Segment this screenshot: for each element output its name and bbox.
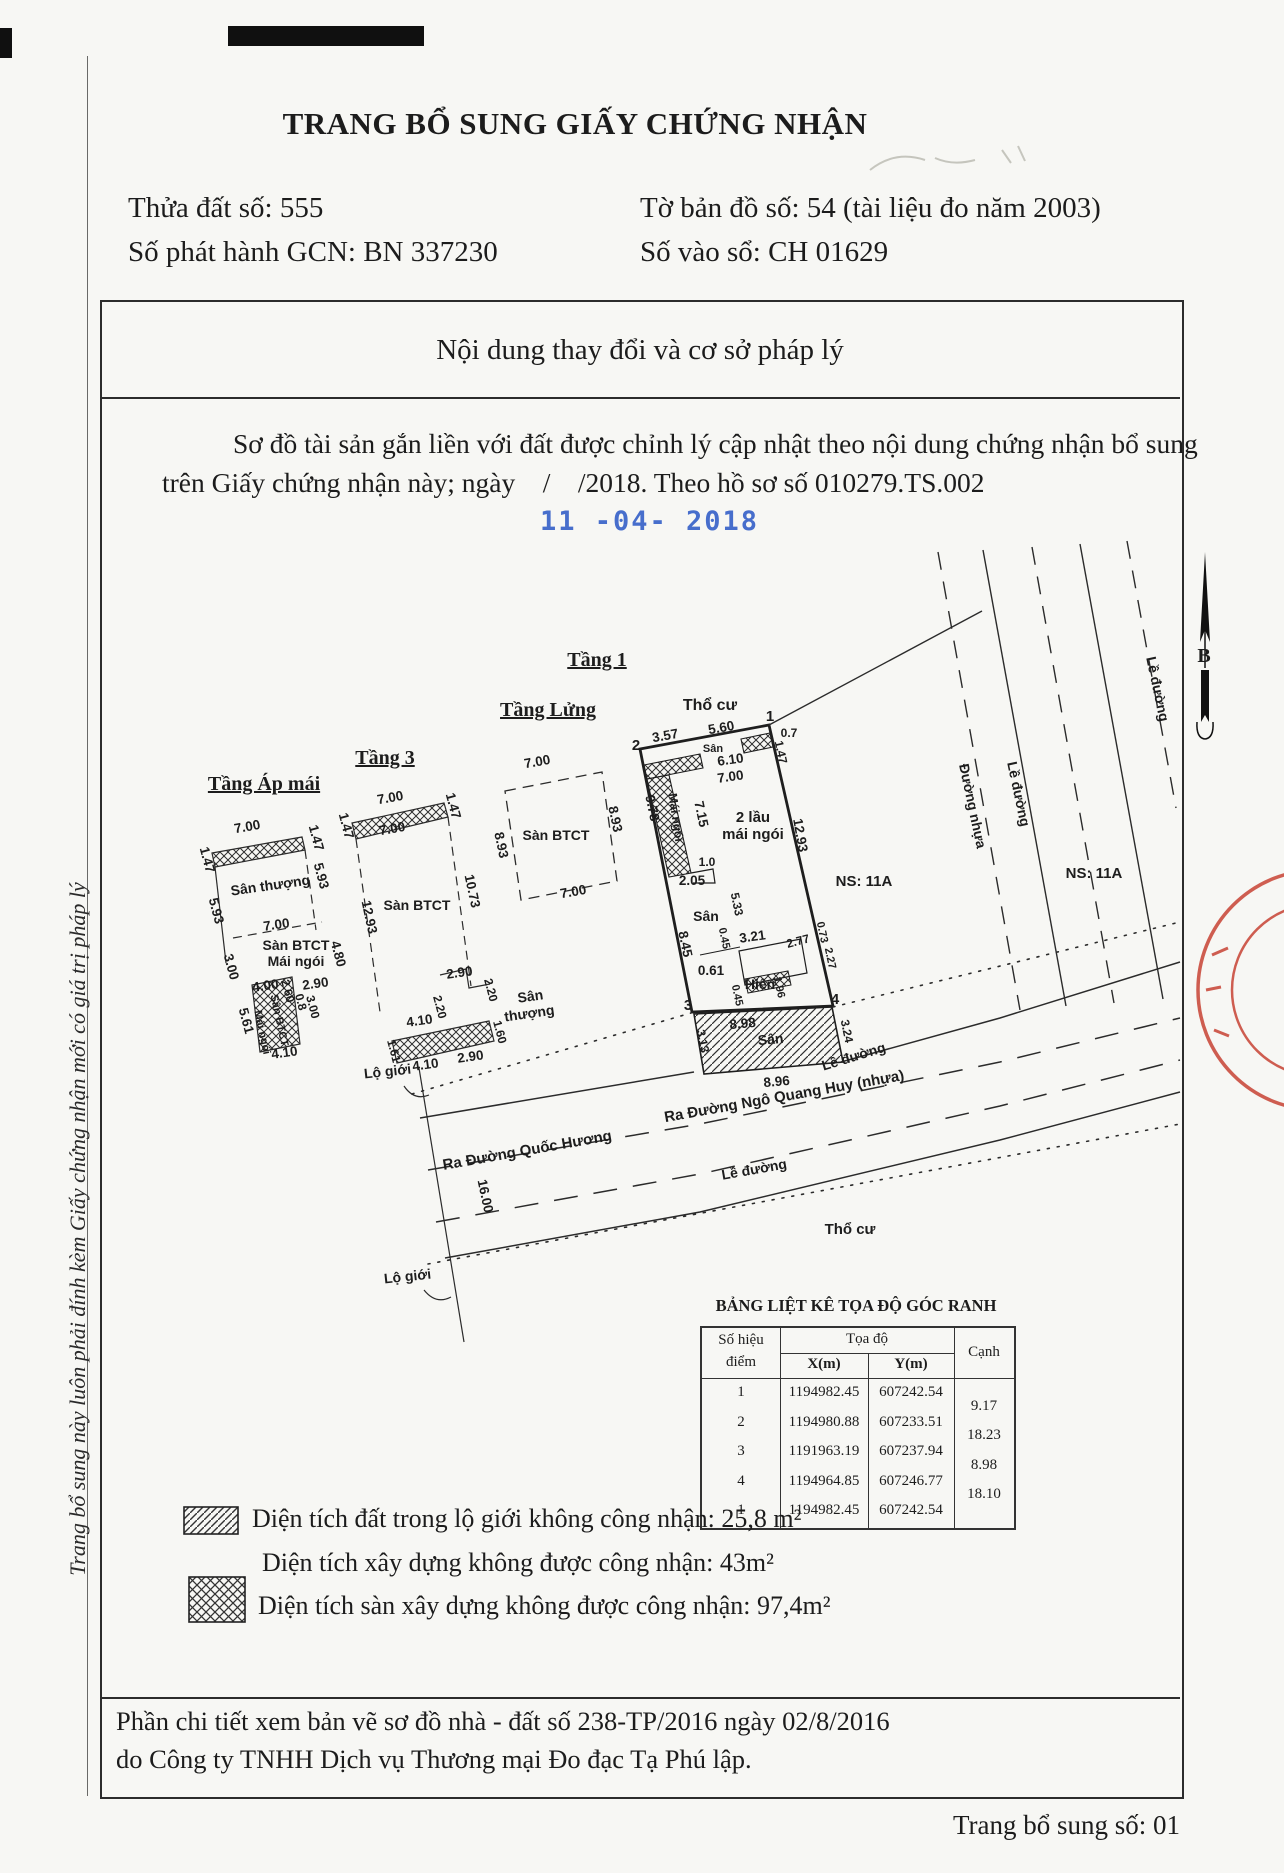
drawing-label: B (1197, 645, 1210, 667)
red-stamp-partial (1198, 870, 1284, 1110)
col-header-y: Y(m) (868, 1356, 954, 1373)
legend-item-1: Diện tích đất trong lộ giới không công n… (252, 1504, 801, 1534)
drawing-label: 3 (684, 997, 692, 1014)
legend-item-2: Diện tích xây dựng không được công nhận:… (262, 1548, 774, 1578)
drawing-label: 1 (766, 708, 774, 725)
drawing-label: 5.93 (206, 896, 227, 926)
pencil-marks (870, 146, 1025, 170)
drawing-label: Lề đường (1143, 655, 1172, 723)
drawing-label: 0.45 (716, 927, 732, 950)
drawing-label: Mái ngói (268, 953, 325, 969)
footer-note-line2: do Công ty TNHH Dịch vụ Thương mại Đo đạ… (116, 1744, 752, 1775)
drawing-label: Thổ cư (825, 1221, 876, 1238)
col-header-coord: Tọa độ (780, 1331, 954, 1348)
drawing-label: 2.05 (679, 873, 706, 888)
drawing-label: 0.45 (729, 984, 745, 1007)
drawing-label: 2.90 (445, 963, 473, 982)
drawing-label: NS: 11A (1066, 865, 1123, 882)
drawing-label: 1.0 (699, 855, 716, 869)
drawing-label: 0.73 (814, 921, 830, 944)
drawing-label: 2.90 (456, 1047, 484, 1066)
drawing-label: 2 lầu (736, 809, 770, 826)
drawing-label: 1.47 (336, 811, 357, 840)
col-header-point: Số hiệu (702, 1332, 780, 1349)
drawing-label: 2.77 (785, 931, 811, 951)
table-row: 21194980.88607233.51 (702, 1408, 954, 1438)
drawing-label: Đường nhựa (956, 762, 990, 850)
drawing-label: 4 (831, 991, 840, 1008)
drawing-label: Sàn BTCT (263, 937, 330, 953)
drawing-label: 8.98 (729, 1015, 757, 1032)
drawing-label: 3.00 (303, 994, 323, 1020)
scanned-document-page: TRANG BỔ SUNG GIẤY CHỨNG NHẬN Thửa đất s… (0, 0, 1284, 1873)
drawing-label: Sân thượng (230, 872, 311, 899)
table-row: 41194964.85607246.77 (702, 1467, 954, 1497)
drawing-label: 5.60 (707, 718, 735, 737)
drawing-label: Lề đường (720, 1155, 788, 1182)
drawing-label: Tầng Áp mái (208, 772, 321, 795)
table-edge-value: 18.23 (954, 1427, 1014, 1444)
drawing-label: 3.00 (221, 952, 242, 981)
table-hline (780, 1353, 954, 1354)
drawing-label: 2.20 (430, 994, 450, 1020)
drawing-label: 7.00 (559, 882, 587, 901)
table-row: 31191963.19607237.94 (702, 1437, 954, 1467)
drawing-label: 2.20 (481, 977, 501, 1003)
drawing-label: 1.47 (197, 845, 218, 874)
drawing-label: 7.00 (233, 817, 261, 836)
drawing-label: 2 (632, 737, 640, 754)
road-bottom (404, 922, 1180, 1342)
drawing-label: 7.00 (262, 915, 290, 934)
drawing-label: 4.80 (328, 939, 349, 968)
divider-line (100, 1697, 1180, 1699)
coord-table-title: BẢNG LIỆT KÊ TỌA ĐỘ GÓC RANH (700, 1296, 1012, 1316)
drawing-label: 7.00 (523, 752, 551, 771)
drawing-label: thượng (503, 1002, 555, 1025)
drawing-label: Thổ cư (683, 696, 738, 714)
drawing-label: 7.00 (378, 819, 406, 838)
drawing-label: 4.10 (270, 1043, 298, 1062)
legend-item-3: Diện tích sàn xây dựng không được công n… (258, 1591, 831, 1621)
drawing-label: 0.61 (698, 963, 725, 978)
drawing-label: 5.93 (311, 861, 332, 891)
drawing-label: 4.10 (405, 1011, 433, 1030)
drawing-label: 3.24 (838, 1018, 857, 1044)
drawing-label: 7.00 (716, 767, 744, 786)
table-edge-value: 8.98 (954, 1457, 1014, 1474)
drawing-label: 8.45 (675, 930, 695, 959)
drawing-label: 4.10 (411, 1055, 439, 1074)
drawing-label: Tầng 3 (355, 747, 414, 769)
drawing-label: 8.93 (491, 831, 511, 860)
drawing-label: Tầng 1 (567, 649, 626, 671)
side-vertical-note: Trang bổ sung này luôn phải đính kèm Giấ… (65, 839, 91, 1619)
drawing-label: Tầng Lửng (500, 699, 596, 721)
drawing-label: 2.90 (301, 974, 329, 993)
drawing-label: NS: 11A (836, 873, 893, 890)
drawing-label: 0.7 (781, 726, 798, 740)
col-header-point2: điểm (702, 1354, 780, 1371)
page-footer: Trang bổ sung số: 01 (780, 1810, 1180, 1841)
col-header-edge: Cạnh (954, 1344, 1014, 1361)
legend-swatch-diagonal (183, 1506, 239, 1536)
drawing-label: 3.21 (738, 927, 767, 946)
table-edge-value: 9.17 (954, 1398, 1014, 1415)
table-row: 11194982.45607242.54 (702, 1378, 954, 1408)
drawing-label: Sàn BTCT (523, 827, 590, 843)
drawing-label: mái ngói (722, 826, 784, 843)
col-header-x: X(m) (780, 1356, 868, 1373)
drawing-label: Lộ giới (363, 1061, 412, 1082)
drawing-label: 5.33 (728, 891, 747, 917)
drawing-label: 7.15 (691, 800, 711, 829)
legend-swatch-cross (188, 1576, 246, 1624)
drawing-label: Ra Đường Quốc Hương (441, 1127, 613, 1174)
drawing-label: Lề đường (1004, 760, 1033, 828)
table-edge-value: 18.10 (954, 1486, 1014, 1503)
drawing-label: 16.00 (475, 1178, 497, 1214)
drawing-label: Sàn BTCT (384, 897, 451, 913)
drawing-label: 12.93 (359, 899, 381, 936)
drawing-label: 10.73 (462, 873, 484, 910)
drawing-label: 1.47 (772, 739, 791, 765)
drawing-label: 1.47 (306, 823, 327, 852)
drawing-label: Sân (757, 1030, 784, 1048)
footer-note-line1: Phần chi tiết xem bản vẽ sơ đồ nhà - đất… (116, 1706, 890, 1737)
drawing-label: Lộ giới (383, 1266, 432, 1287)
drawing-label: 7.00 (376, 788, 404, 807)
coord-table: Số hiệu điểm Tọa độ X(m) Y(m) Cạnh 11194… (700, 1326, 1016, 1530)
drawing-label: 12.93 (790, 817, 811, 853)
drawing-label: 8.93 (605, 805, 625, 834)
drawing-label: 6.10 (716, 750, 744, 769)
drawing-label: Hiên (745, 976, 775, 992)
drawing-label: Sân (693, 908, 719, 924)
